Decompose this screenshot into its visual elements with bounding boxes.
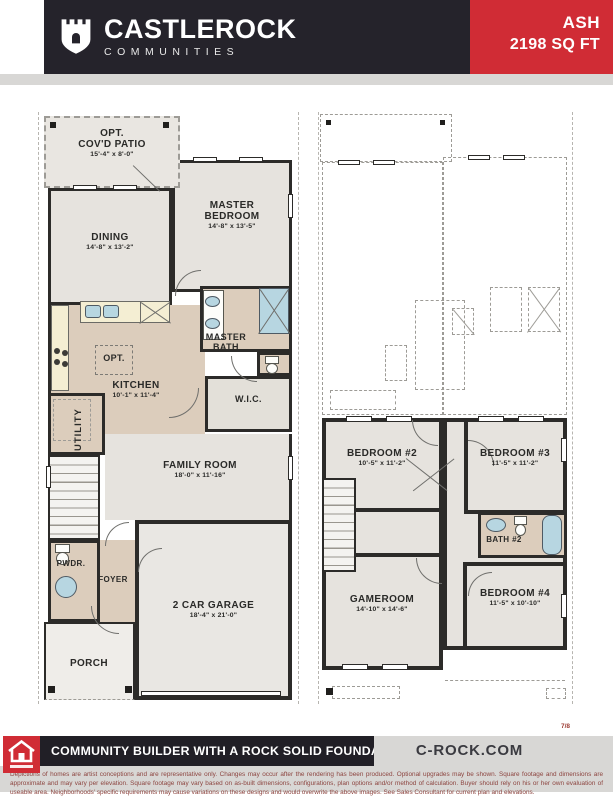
brand-name: CASTLEROCK [104, 16, 297, 43]
window-marker [503, 155, 525, 160]
label-bath2: BATH #2 [481, 536, 527, 545]
below-detail-box [490, 287, 522, 332]
room-dims: 14'-8" x 13'-5" [197, 223, 267, 230]
roof-below-box [546, 688, 566, 699]
garage-door [141, 691, 281, 696]
wall [463, 562, 567, 566]
room-dims: 18'-0" x 11'-16" [140, 472, 260, 479]
room-name: FAMILY ROOM [140, 460, 260, 471]
castlerock-logo-icon [60, 13, 92, 61]
room-dims: 18'-4" x 21'-0" [147, 612, 280, 619]
stairs [322, 478, 356, 572]
wall [464, 510, 567, 514]
lot-line-right [298, 112, 299, 704]
label-bedroom4: BEDROOM #4 11'-5" x 10'-10" [468, 588, 562, 607]
stove-burner [54, 348, 60, 354]
window-marker [288, 194, 293, 218]
window-marker [468, 155, 490, 160]
label-master-bedroom: MASTER BEDROOM 14'-8" x 13'-5" [197, 200, 267, 230]
label-utility: UTILITY [73, 401, 84, 451]
label-family-room: FAMILY ROOM 18'-0" x 11'-16" [140, 460, 260, 479]
room-name: GAMEROOM [340, 594, 424, 605]
label-gameroom: GAMEROOM 14'-10" x 14'-6" [340, 594, 424, 613]
page-number: 7/8 [536, 723, 570, 730]
label-master-bath: MASTER BATH [200, 332, 252, 352]
window-marker [338, 160, 360, 165]
header-shadow [0, 74, 613, 85]
window-marker [382, 664, 408, 670]
label-patio: OPT. COV'D PATIO 15'-4" x 8'-0" [54, 128, 170, 158]
label-foyer: FOYER [87, 576, 139, 585]
utility-appliances [53, 399, 91, 441]
window-marker [478, 416, 504, 422]
house-icon [6, 739, 37, 764]
room-dims: 11'-5" x 10'-10" [468, 600, 562, 607]
floor2-plan: BEDROOM #2 10'-5" x 11'-2" BEDROOM #3 11… [318, 108, 576, 724]
room-name: FOYER [87, 576, 139, 585]
window-marker [288, 456, 293, 480]
label-kitchen: KITCHEN 10'-1" x 11'-4" [96, 380, 176, 399]
room-name: PWDR. [48, 560, 94, 569]
brand-subtitle: COMMUNITIES [104, 46, 297, 58]
room-name: PORCH [57, 658, 121, 669]
brand-text: CASTLEROCK COMMUNITIES [104, 16, 297, 58]
lot-line-right [572, 112, 573, 704]
plan-name: ASH [470, 13, 600, 33]
window-marker [346, 416, 372, 422]
room-dims: 15'-4" x 8'-0" [54, 151, 170, 158]
toilet-bowl [266, 363, 278, 374]
label-powder: PWDR. [48, 560, 94, 569]
footer-website[interactable]: C-ROCK.COM [374, 736, 613, 766]
plan-sqft: 2198 SQ FT [470, 36, 600, 54]
room-name: COV'D PATIO [54, 139, 170, 150]
roof-below-outline [332, 686, 400, 699]
room-dims: 14'-10" x 14'-6" [340, 606, 424, 613]
room-dims: 14'-8" x 13'-2" [70, 244, 150, 251]
lot-line-left [38, 112, 39, 704]
below-counter [330, 390, 396, 410]
room-name: OPT. [54, 128, 170, 139]
porch-post [125, 686, 132, 693]
kitchen-sink [85, 305, 101, 318]
footer-house-icon [3, 736, 40, 773]
window-marker [386, 416, 412, 422]
room-name: OPT. [95, 353, 133, 363]
window-marker [373, 160, 395, 165]
footer-icon-wordmark [10, 765, 33, 768]
below-island [385, 345, 407, 381]
room-name: 2 CAR GARAGE [147, 600, 280, 611]
room-name: BEDROOM #2 [330, 448, 434, 459]
disclaimer-text: Depictions of homes are artist conceptio… [0, 766, 613, 792]
roof-post [326, 688, 333, 695]
sink [486, 518, 506, 532]
patio-post [440, 120, 445, 125]
roof-below-line [445, 680, 565, 681]
window-marker [342, 664, 368, 670]
footer-tagline-bar: COMMUNITY BUILDER WITH A ROCK SOLID FOUN… [40, 736, 374, 766]
room-name: MASTER BEDROOM [197, 200, 267, 222]
wall [463, 562, 467, 650]
door-arc [105, 522, 129, 546]
plan-badge: ASH 2198 SQ FT [470, 0, 613, 74]
footer-tagline: COMMUNITY BUILDER WITH A ROCK SOLID FOUN… [51, 744, 410, 758]
window-marker [239, 157, 263, 162]
brand-bar: CASTLEROCK COMMUNITIES [44, 0, 470, 74]
room-dims: 10'-1" x 11'-4" [96, 392, 176, 399]
floor1-plan: OPT. COV'D PATIO 15'-4" x 8'-0" MASTER B… [35, 108, 313, 724]
label-porch: PORCH [57, 658, 121, 669]
label-bedroom3: BEDROOM #3 11'-5" x 11'-2" [466, 448, 564, 467]
room-name: MASTER BATH [200, 332, 252, 352]
room-name: KITCHEN [96, 380, 176, 391]
tub [542, 515, 562, 555]
patio-post [326, 120, 331, 125]
label-island: OPT. [95, 353, 133, 363]
label-garage: 2 CAR GARAGE 18'-4" x 21'-0" [147, 600, 280, 619]
label-bedroom2: BEDROOM #2 10'-5" x 11'-2" [330, 448, 434, 467]
room-dims: 11'-5" x 11'-2" [466, 460, 564, 467]
patio-below-outline [320, 114, 452, 162]
room-name: DINING [70, 232, 150, 243]
label-dining: DINING 14'-8" x 13'-2" [70, 232, 150, 251]
vanity-sink [205, 296, 220, 307]
label-wic: W.I.C. [205, 394, 292, 404]
kitchen-counter-left [51, 305, 69, 391]
window-marker [193, 157, 217, 162]
porch-post [48, 686, 55, 693]
room-dims: 10'-5" x 11'-2" [330, 460, 434, 467]
window-marker [46, 466, 51, 488]
vanity-sink [205, 318, 220, 329]
round-sink [55, 576, 77, 598]
window-marker [113, 185, 137, 190]
room-name: BEDROOM #3 [466, 448, 564, 459]
window-marker [518, 416, 544, 422]
stairs [48, 455, 100, 540]
room-name: BATH #2 [481, 536, 527, 545]
room-name: BEDROOM #4 [468, 588, 562, 599]
lot-line-left [318, 112, 319, 704]
kitchen-sink [103, 305, 119, 318]
window-marker [73, 185, 97, 190]
room-name: W.I.C. [205, 394, 292, 404]
